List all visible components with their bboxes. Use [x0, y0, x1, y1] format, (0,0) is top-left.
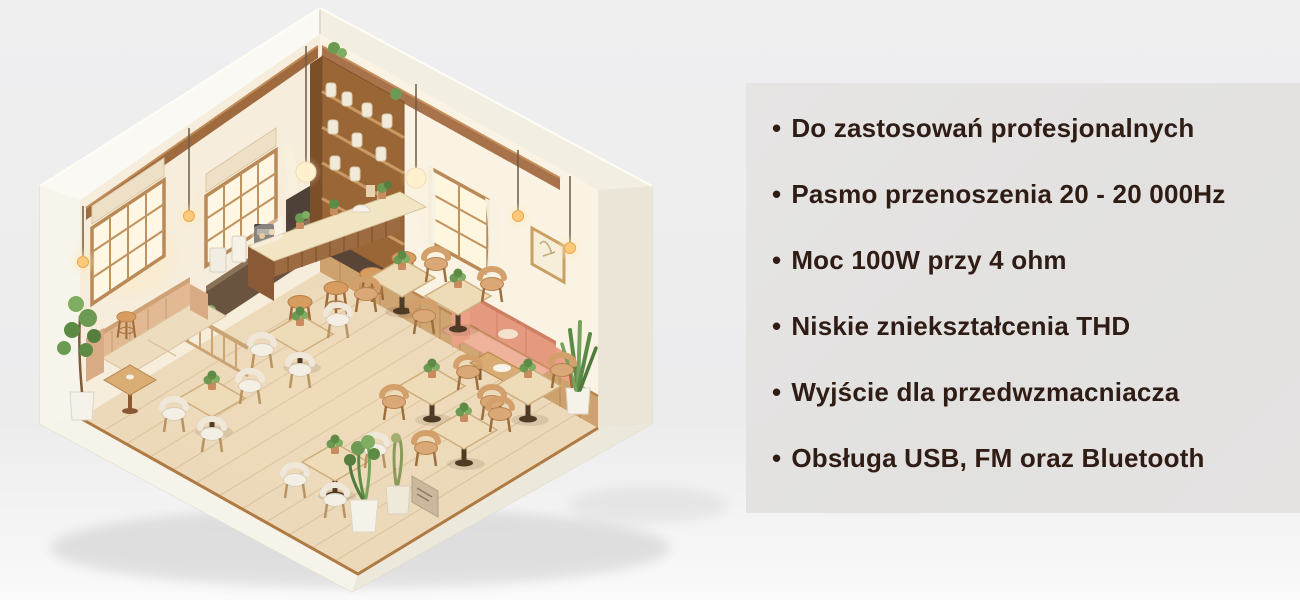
feature-text: Do zastosowań profesjonalnych: [791, 113, 1194, 144]
feature-list: •Do zastosowań profesjonalnych •Pasmo pr…: [746, 83, 1300, 491]
feature-item: •Niskie zniekształcenia THD: [772, 293, 1290, 359]
feature-item: •Wyjście dla przedwzmacniacza: [772, 359, 1290, 425]
feature-item: •Moc 100W przy 4 ohm: [772, 227, 1290, 293]
feature-item: •Do zastosowań profesjonalnych: [772, 95, 1290, 161]
cafe-isometric-illustration: [0, 0, 740, 600]
bullet-marker: •: [772, 379, 781, 405]
bullet-marker: •: [772, 247, 781, 273]
bullet-marker: •: [772, 445, 781, 471]
feature-text: Niskie zniekształcenia THD: [791, 311, 1130, 342]
bullet-marker: •: [772, 181, 781, 207]
bullet-marker: •: [772, 313, 781, 339]
feature-text: Moc 100W przy 4 ohm: [791, 245, 1066, 276]
feature-text: Wyjście dla przedwzmacniacza: [791, 377, 1179, 408]
bullet-marker: •: [772, 115, 781, 141]
page: •Do zastosowań profesjonalnych •Pasmo pr…: [0, 0, 1300, 600]
feature-text: Obsługa USB, FM oraz Bluetooth: [791, 443, 1204, 474]
feature-text: Pasmo przenoszenia 20 - 20 000Hz: [791, 179, 1225, 210]
feature-item: •Obsługa USB, FM oraz Bluetooth: [772, 425, 1290, 491]
features-panel: •Do zastosowań profesjonalnych •Pasmo pr…: [746, 83, 1300, 513]
feature-item: •Pasmo przenoszenia 20 - 20 000Hz: [772, 161, 1290, 227]
